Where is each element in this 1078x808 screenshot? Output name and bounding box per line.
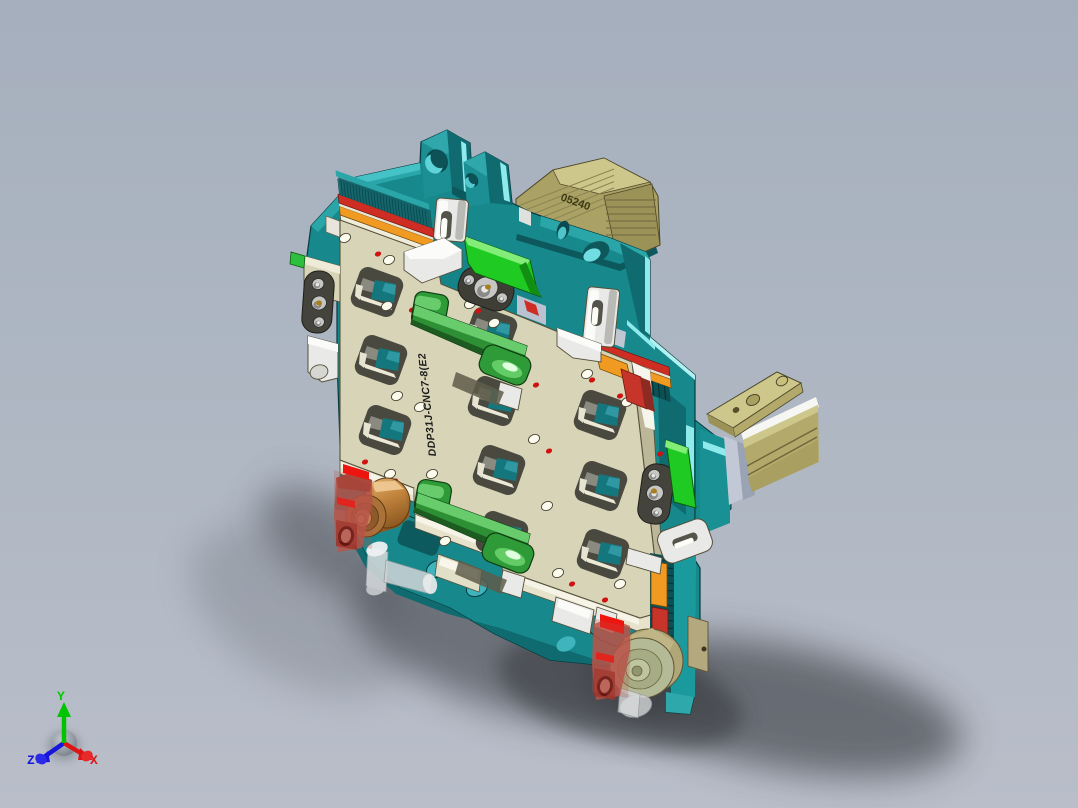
- svg-text:Z: Z: [27, 753, 35, 768]
- svg-text:Y: Y: [57, 689, 65, 704]
- svg-text:X: X: [90, 753, 98, 768]
